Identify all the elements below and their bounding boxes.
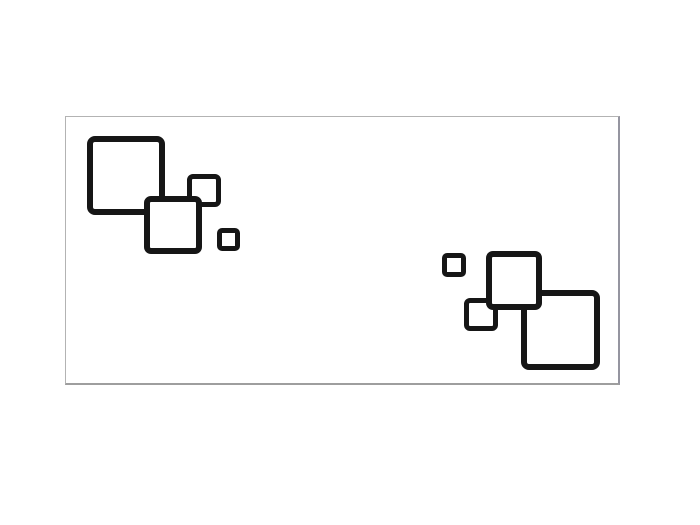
page-background: [0, 0, 700, 525]
square-top-left-medium: [144, 196, 202, 254]
square-top-left-tiny: [217, 228, 240, 251]
squares-canvas: [65, 116, 620, 385]
square-bottom-right-medium: [486, 251, 542, 310]
square-bottom-right-tiny: [442, 253, 466, 277]
